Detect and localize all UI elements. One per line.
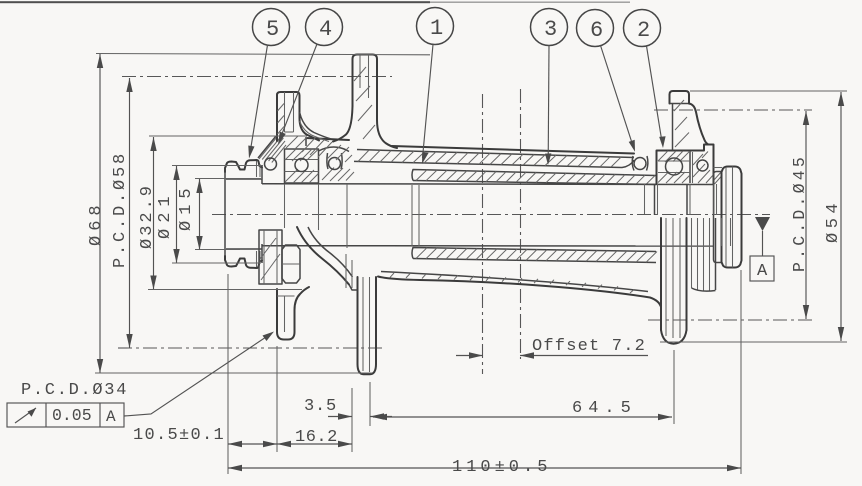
svg-text:2: 2: [637, 18, 650, 43]
svg-text:110±0.5: 110±0.5: [452, 458, 551, 477]
svg-text:P.C.D.Ø58: P.C.D.Ø58: [111, 151, 130, 268]
svg-text:P.C.D.Ø34: P.C.D.Ø34: [21, 381, 128, 400]
svg-text:6: 6: [590, 18, 603, 43]
svg-text:P.C.D.Ø45: P.C.D.Ø45: [790, 154, 809, 272]
svg-text:Ø54: Ø54: [824, 199, 843, 243]
svg-text:Ø68: Ø68: [87, 200, 106, 246]
svg-text:3.5: 3.5: [304, 397, 337, 416]
svg-text:3: 3: [544, 17, 557, 42]
svg-text:1: 1: [430, 16, 443, 41]
svg-text:Ø15: Ø15: [177, 182, 196, 231]
svg-text:0.05: 0.05: [52, 406, 92, 425]
svg-text:10.5±0.1: 10.5±0.1: [133, 426, 225, 445]
svg-text:4: 4: [319, 17, 332, 42]
svg-text:Offset 7.2: Offset 7.2: [532, 337, 646, 356]
svg-text:Ø32.9: Ø32.9: [138, 183, 157, 249]
svg-text:Ø21: Ø21: [156, 190, 175, 239]
svg-text:A: A: [106, 408, 116, 426]
svg-text:A: A: [757, 262, 768, 281]
svg-text:64.5: 64.5: [572, 399, 637, 418]
svg-text:5: 5: [266, 17, 279, 42]
svg-text:16.2: 16.2: [295, 428, 338, 447]
